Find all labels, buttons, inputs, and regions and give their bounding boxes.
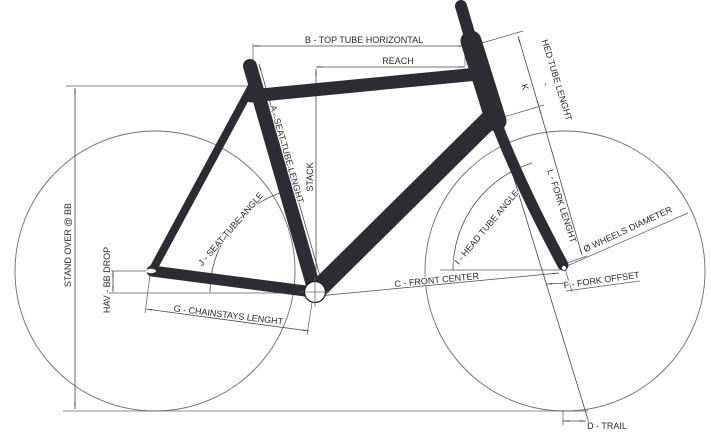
- diagram-svg: B - TOP TUBE HORIZONTAL REACH STACK A - …: [0, 0, 711, 437]
- top-tube: [251, 74, 478, 96]
- rear-dropout-slot: [146, 269, 156, 273]
- frame-geometry-diagram: B - TOP TUBE HORIZONTAL REACH STACK A - …: [0, 0, 711, 437]
- label-fork-offset: F - FORK OFFSET: [563, 270, 641, 291]
- label-head-tube-length: HED TUBE LENGHT: [540, 38, 574, 122]
- label-seat-tube-angle: J - SEAT TUBE ANGLE: [196, 190, 265, 268]
- label-top-tube-horizontal: B - TOP TUBE HORIZONTAL: [305, 35, 423, 45]
- label-chainstays-length: G - CHAINSTAYS LENGHT: [173, 303, 284, 326]
- label-bb-drop: HAV - BB DROP: [102, 247, 112, 313]
- label-stack: STACK: [305, 162, 315, 191]
- front-dropout: [561, 265, 566, 270]
- label-reach: REACH: [382, 56, 414, 66]
- wheel-diameter-line: [567, 213, 688, 266]
- label-stand-over: STAND OVER @ BB: [63, 203, 73, 287]
- label-head-tube-angle: I - HEAD TUBE ANGLE: [453, 188, 521, 267]
- dim-head-tube: [518, 36, 539, 107]
- label-head-tube-dash: -: [541, 81, 551, 87]
- chainstay: [152, 271, 313, 292]
- label-wheels-diameter: Ø WHEELS DIAMETER: [582, 204, 674, 254]
- label-front-center: C - FRONT CENTER: [394, 271, 480, 289]
- label-trail: D - TRAIL: [587, 421, 627, 431]
- front-wheel: [425, 131, 705, 411]
- down-tube: [315, 117, 492, 292]
- label-head-tube-k: K: [519, 83, 530, 92]
- seat-stay: [152, 84, 253, 271]
